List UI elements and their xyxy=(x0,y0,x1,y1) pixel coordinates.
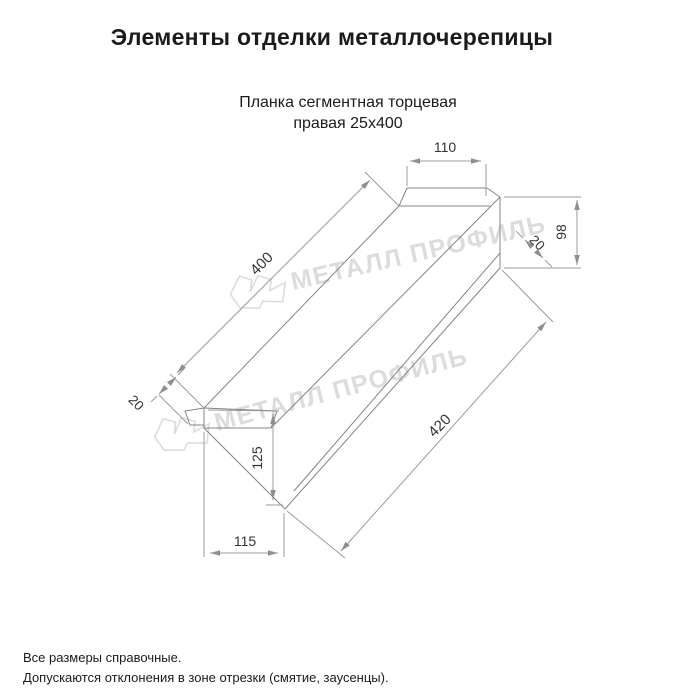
dim-label-125: 125 xyxy=(249,446,265,470)
dim-label-400: 400 xyxy=(247,249,277,279)
footer-note-2: Допускаются отклонения в зоне отрезки (с… xyxy=(23,668,389,688)
watermark-lower: МЕТАЛЛ ПРОФИЛЬ xyxy=(151,338,472,456)
dim-label-98: 98 xyxy=(553,224,569,240)
dimension-115: 115 xyxy=(204,432,284,557)
dimension-420: 420 xyxy=(287,270,553,558)
dimension-20-bottom-left: 20 xyxy=(126,369,188,424)
dim-label-110: 110 xyxy=(434,139,457,155)
dim-label-115: 115 xyxy=(234,533,257,549)
footer-note-1: Все размеры справочные. xyxy=(23,648,389,668)
dimension-110: 110 xyxy=(407,139,486,196)
technical-drawing: МЕТАЛЛ ПРОФИЛЬ МЕТАЛЛ ПРОФИЛЬ xyxy=(0,0,700,700)
catalog-page: Элементы отделки металлочерепицы Планка … xyxy=(0,0,700,700)
footer-notes: Все размеры справочные. Допускаются откл… xyxy=(23,648,389,688)
dim-label-20-bottom: 20 xyxy=(126,392,147,413)
dim-label-420: 420 xyxy=(425,411,455,441)
